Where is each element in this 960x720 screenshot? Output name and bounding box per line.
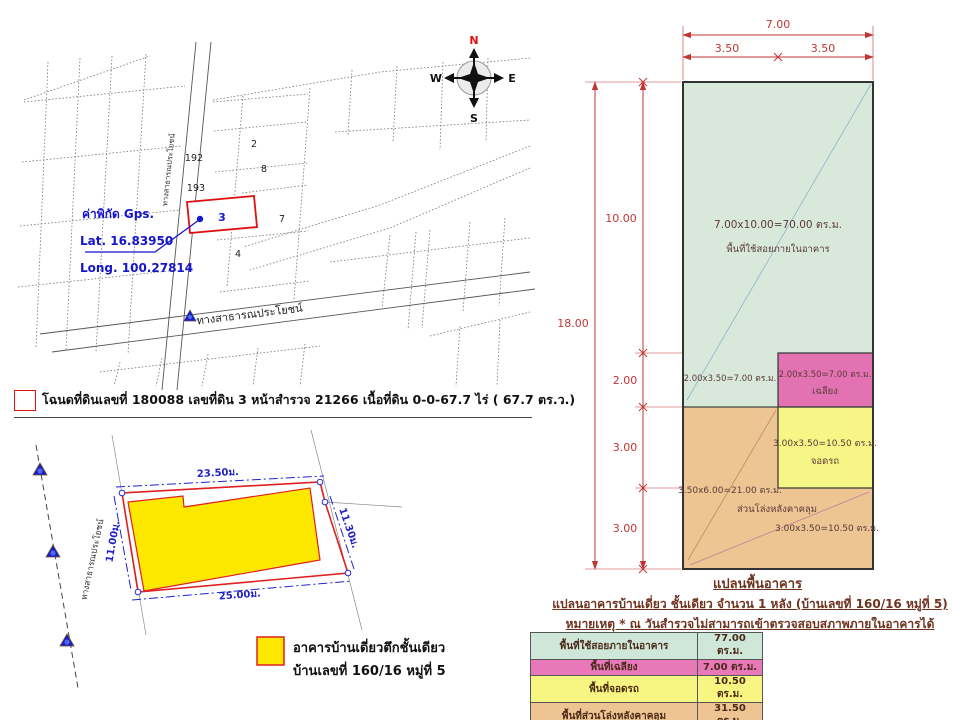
svg-text:25.00ม.: 25.00ม. — [218, 589, 261, 603]
svg-text:S: S — [470, 112, 478, 125]
svg-text:3.00x3.50=10.50 ตร.ม.: 3.00x3.50=10.50 ตร.ม. — [775, 524, 879, 534]
svg-text:3.50: 3.50 — [811, 42, 836, 55]
svg-text:จอดรถ: จอดรถ — [811, 456, 840, 467]
table-row: พื้นที่ส่วนโล่งหลังคาคลุม 31.50 ตร.ม. — [531, 703, 763, 720]
table-row: พื้นที่ใช้สอยภายในอาคาร 77.00 ตร.ม. — [531, 633, 763, 660]
plot-number: 193 — [187, 183, 205, 194]
svg-text:3.00x3.50=10.50 ตร.ม.: 3.00x3.50=10.50 ตร.ม. — [773, 439, 877, 449]
area-label: พื้นที่เฉลียง — [531, 660, 698, 676]
plot-number: 8 — [261, 164, 267, 175]
road-label-bottom: ทางสาธารณประโยชน์ — [196, 301, 304, 328]
area-value: 7.00 ตร.ม. — [698, 660, 763, 676]
svg-text:พื้นที่ใช้สอยภายในอาคาร: พื้นที่ใช้สอยภายในอาคาร — [726, 242, 829, 255]
area-value: 77.00 ตร.ม. — [698, 633, 763, 660]
area-summary-table: พื้นที่ใช้สอยภายในอาคาร 77.00 ตร.ม. พื้น… — [530, 632, 763, 720]
section-divider — [14, 417, 532, 418]
table-row: พื้นที่จอดรถ 10.50 ตร.ม. — [531, 676, 763, 703]
svg-text:3.00: 3.00 — [613, 522, 638, 535]
site-plan: ทางสาธารณประโยชน์ 23.50ม. 25.00ม. — [0, 430, 500, 720]
svg-text:23.50ม.: 23.50ม. — [197, 467, 240, 480]
building-footprint — [128, 488, 320, 591]
building-legend-line1: อาคารบ้านเดี่ยวตึกชั้นเดียว — [293, 637, 445, 656]
svg-text:2.00x3.50=7.00 ตร.ม.: 2.00x3.50=7.00 ตร.ม. — [779, 370, 872, 380]
svg-text:W: W — [430, 72, 442, 85]
deed-text: โฉนดที่ดินเลขที่ 180088 เลขที่ดิน 3 หน้า… — [42, 390, 575, 410]
document-page: 2 192 8 193 7 4 3 ค่าพิกัด Gps. Lat. 16.… — [0, 0, 960, 720]
plot-number: 192 — [185, 153, 203, 164]
area-label: พื้นที่จอดรถ — [531, 676, 698, 703]
svg-text:Long. 100.27814: Long. 100.27814 — [80, 261, 193, 275]
building-legend-swatch — [257, 637, 284, 665]
svg-text:2.00x3.50=7.00 ตร.ม.: 2.00x3.50=7.00 ตร.ม. — [684, 374, 777, 384]
svg-text:N: N — [469, 34, 478, 47]
deed-legend-box — [14, 390, 36, 411]
area-porch — [778, 353, 873, 407]
area-main — [683, 82, 873, 353]
floor-plan-note1: แปลนอาคารบ้านเดี่ยว ชั้นเดียว จำนวน 1 หล… — [540, 595, 960, 614]
building-legend-line2: บ้านเลขที่ 160/16 หมู่ที่ 5 — [293, 661, 446, 679]
svg-text:E: E — [508, 72, 516, 85]
cadastral-map: 2 192 8 193 7 4 3 ค่าพิกัด Gps. Lat. 16.… — [0, 0, 540, 386]
area-label: พื้นที่ส่วนโล่งหลังคาคลุม — [531, 703, 698, 720]
gps-point — [197, 216, 203, 222]
svg-text:เฉลียง: เฉลียง — [812, 385, 838, 397]
floor-plan-caption: แปลนพื้นอาคาร — [555, 573, 960, 594]
svg-text:7.00: 7.00 — [766, 18, 791, 31]
svg-text:11.00ม.: 11.00ม. — [104, 520, 122, 563]
svg-text:2.00: 2.00 — [613, 374, 638, 387]
deed-legend-row: โฉนดที่ดินเลขที่ 180088 เลขที่ดิน 3 หน้า… — [14, 388, 534, 412]
area-value: 31.50 ตร.ม. — [698, 703, 763, 720]
plot-number: 2 — [251, 139, 257, 150]
svg-text:3.50x6.00=21.00 ตร.ม.: 3.50x6.00=21.00 ตร.ม. — [678, 486, 782, 496]
survey-marker-icon — [33, 463, 74, 646]
road-label-vertical: ทางสาธารณประโยชน์ — [160, 133, 177, 206]
svg-text:ส่วนโล่งหลังคาคลุม: ส่วนโล่งหลังคาคลุม — [737, 503, 817, 515]
svg-text:18.00: 18.00 — [557, 317, 589, 330]
site-road-label: ทางสาธารณประโยชน์ — [79, 518, 107, 601]
area-value: 10.50 ตร.ม. — [698, 676, 763, 703]
survey-baseline — [36, 445, 78, 688]
subject-parcel-number: 3 — [218, 211, 226, 224]
floor-plan: 7.00x10.00=70.00 ตร.ม. พื้นที่ใช้สอยภายใ… — [555, 0, 960, 572]
area-label: พื้นที่ใช้สอยภายในอาคาร — [531, 633, 698, 660]
svg-text:10.00: 10.00 — [605, 212, 637, 225]
svg-text:3.50: 3.50 — [715, 42, 740, 55]
table-row: พื้นที่เฉลียง 7.00 ตร.ม. — [531, 660, 763, 676]
svg-text:3.00: 3.00 — [613, 441, 638, 454]
svg-text:Lat. 16.83950: Lat. 16.83950 — [80, 234, 173, 248]
plot-number: 4 — [235, 249, 241, 260]
svg-text:ค่าพิกัด Gps.: ค่าพิกัด Gps. — [82, 207, 154, 221]
svg-text:7.00x10.00=70.00 ตร.ม.: 7.00x10.00=70.00 ตร.ม. — [714, 219, 842, 231]
compass-icon: N S W E — [430, 34, 516, 125]
plot-number: 7 — [279, 214, 285, 225]
